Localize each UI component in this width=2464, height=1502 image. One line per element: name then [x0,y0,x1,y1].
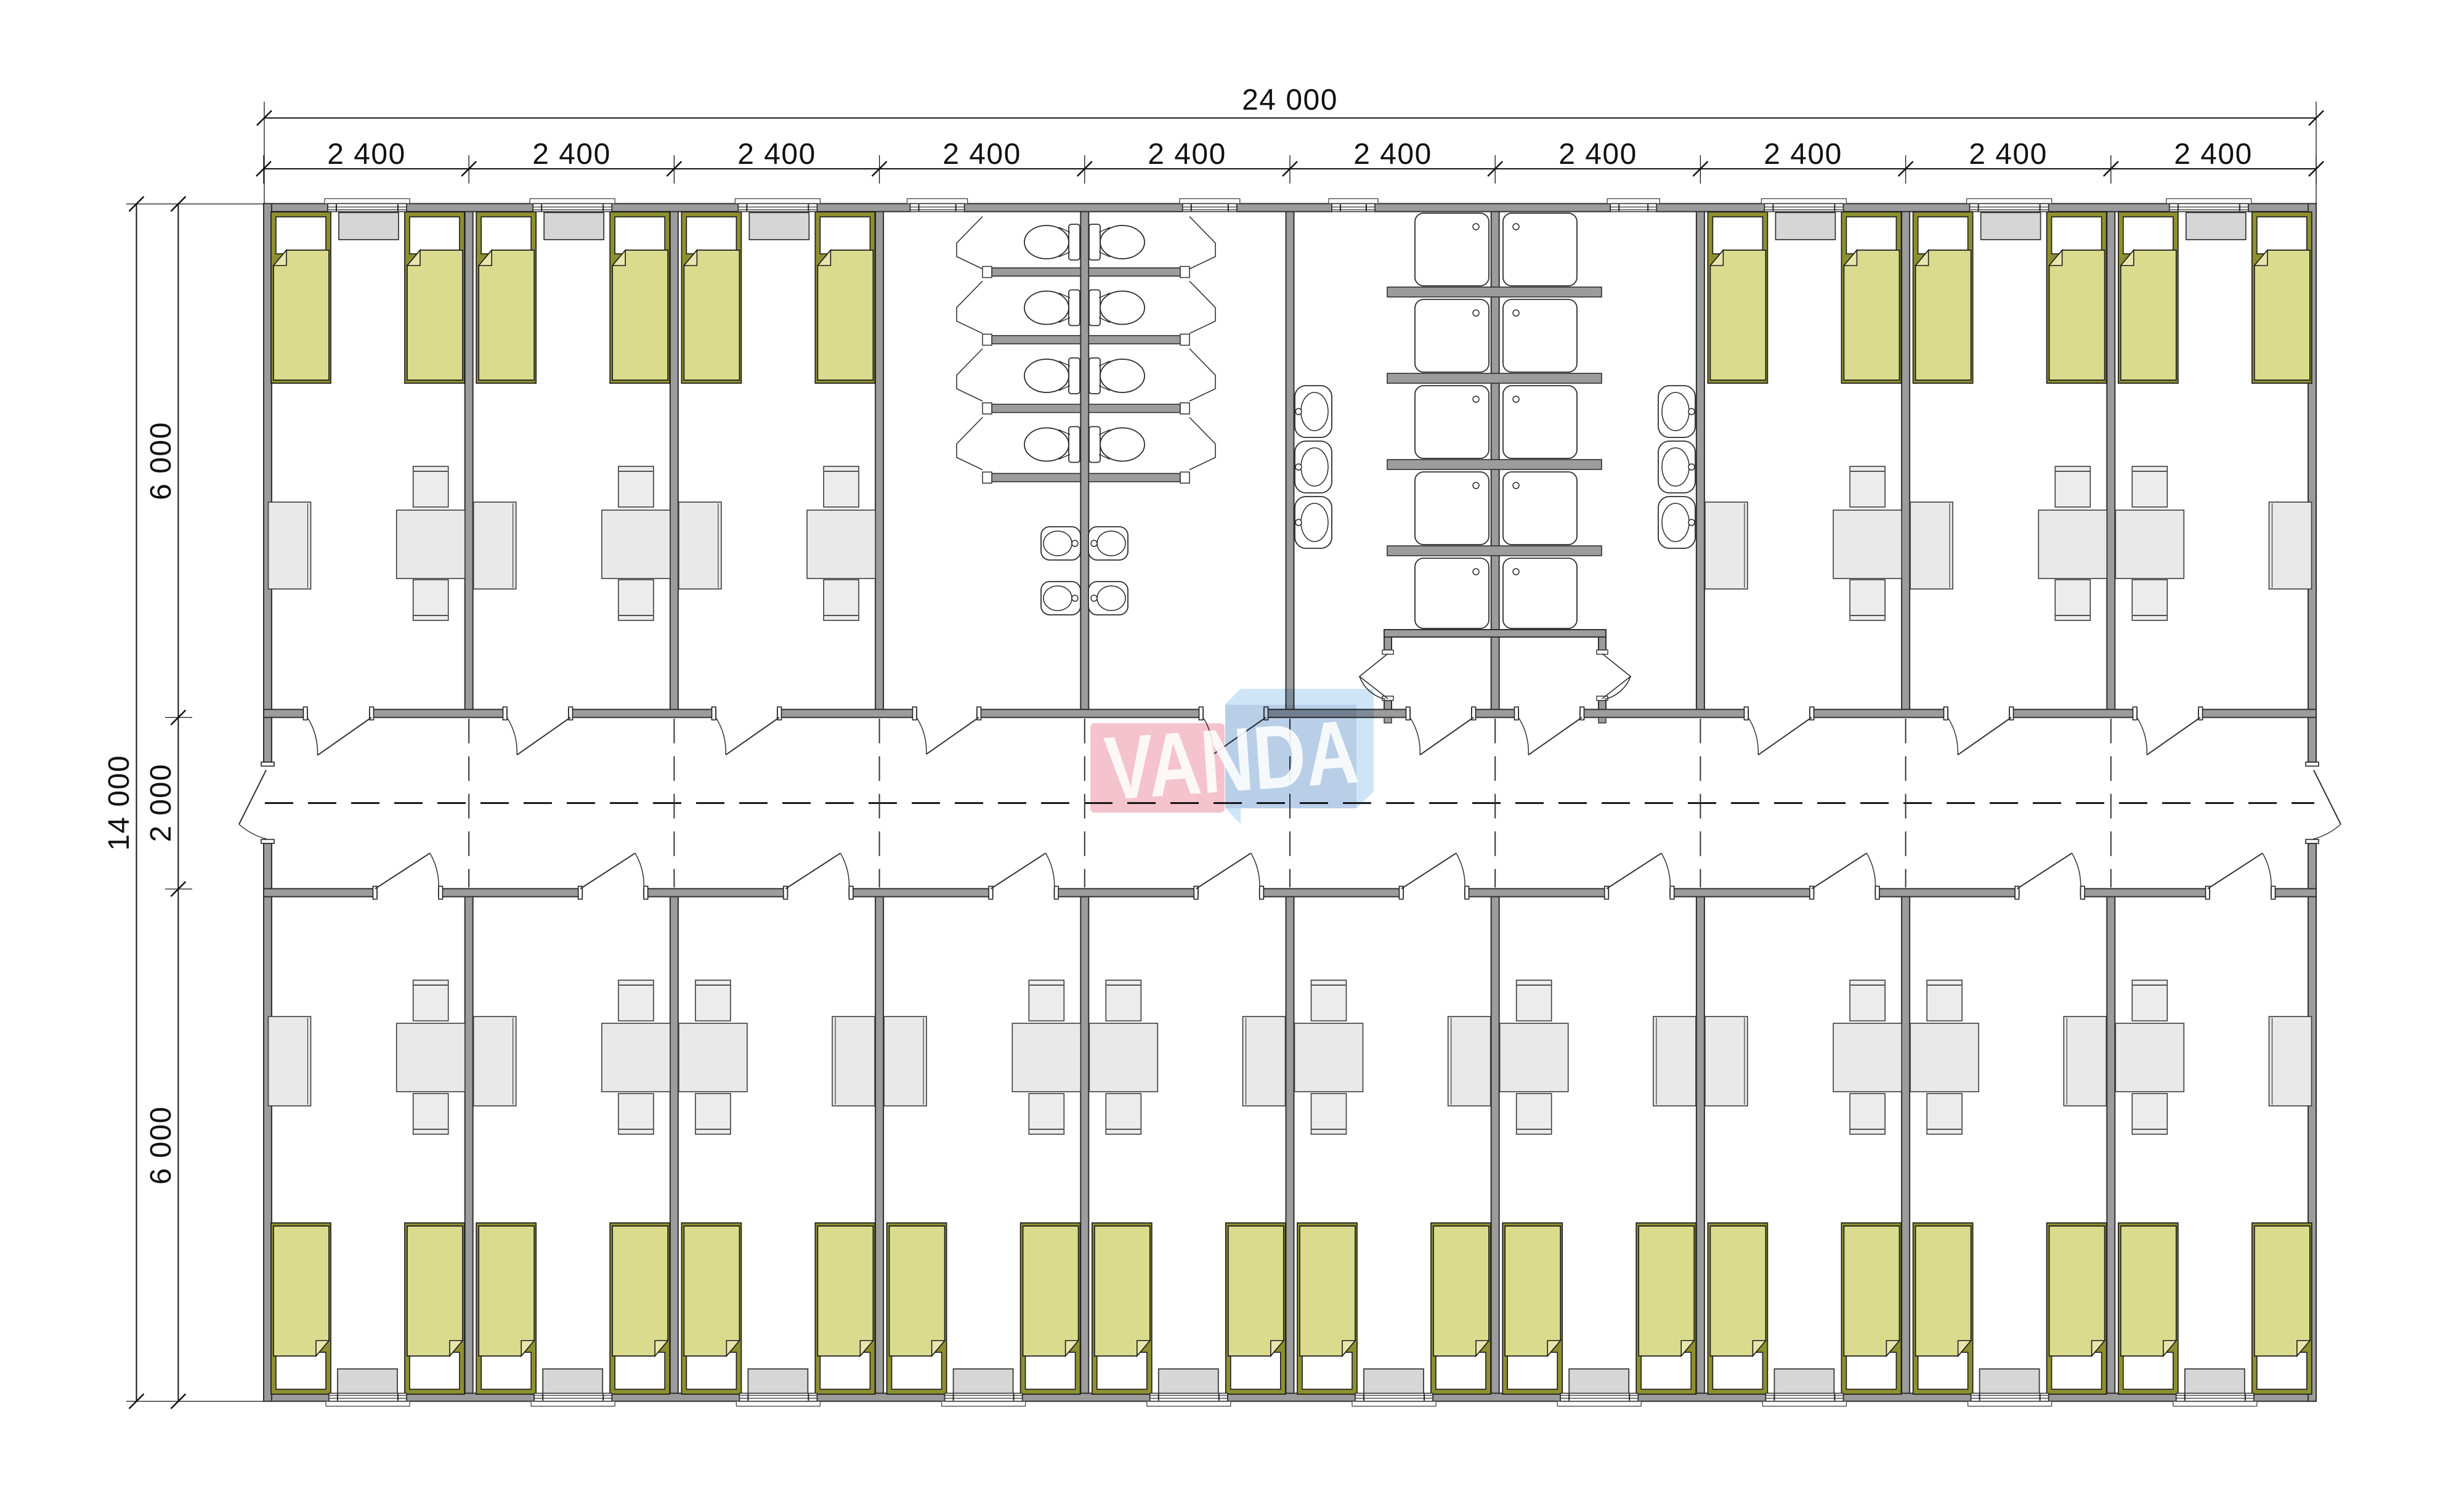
svg-text:14 000: 14 000 [103,755,136,851]
svg-text:2 400: 2 400 [942,138,1021,171]
svg-text:2 400: 2 400 [1764,138,1842,171]
svg-text:2 400: 2 400 [532,138,611,171]
svg-text:6 000: 6 000 [145,1106,177,1185]
svg-text:2 000: 2 000 [145,763,177,842]
svg-text:2 400: 2 400 [327,138,406,171]
svg-text:2 400: 2 400 [2174,138,2253,171]
svg-text:2 400: 2 400 [1148,138,1226,171]
svg-text:VANDA: VANDA [1101,701,1361,819]
svg-text:2 400: 2 400 [1558,138,1637,171]
svg-text:2 400: 2 400 [737,138,816,171]
svg-text:2 400: 2 400 [1353,138,1432,171]
svg-text:24 000: 24 000 [1242,84,1338,116]
svg-text:6 000: 6 000 [145,421,177,500]
svg-text:2 400: 2 400 [1969,138,2048,171]
